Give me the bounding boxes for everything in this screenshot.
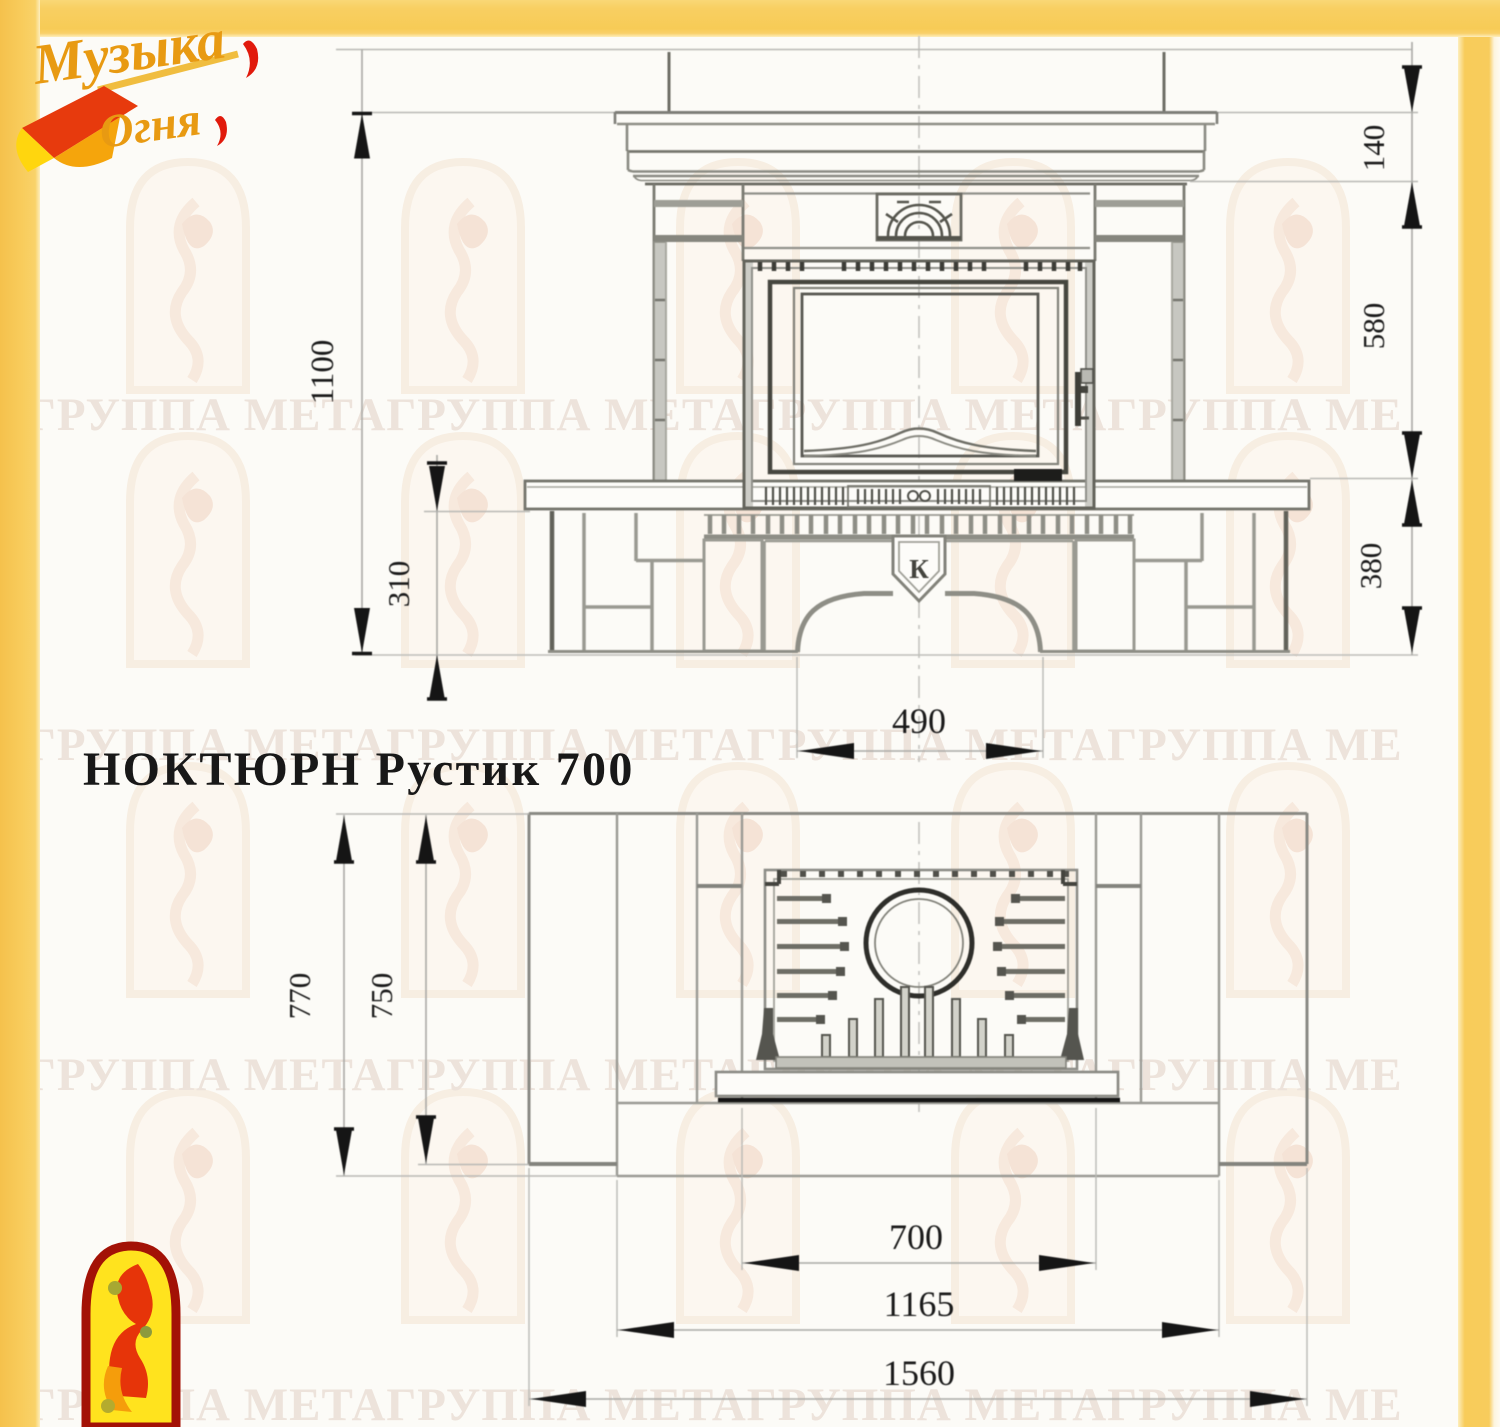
svg-text:580: 580 <box>1356 303 1391 350</box>
svg-text:770: 770 <box>282 973 317 1020</box>
svg-text:750: 750 <box>364 973 399 1020</box>
svg-text:1165: 1165 <box>884 1284 955 1324</box>
svg-text:140: 140 <box>1356 125 1391 172</box>
svg-text:1100: 1100 <box>305 340 341 405</box>
svg-text:Музыка: Музыка <box>28 8 229 97</box>
svg-text:К: К <box>909 554 929 584</box>
svg-text:700: 700 <box>889 1217 943 1257</box>
svg-text:490: 490 <box>892 701 946 741</box>
svg-text:1560: 1560 <box>883 1353 955 1393</box>
svg-text:380: 380 <box>1353 543 1388 590</box>
svg-text:310: 310 <box>381 561 416 608</box>
